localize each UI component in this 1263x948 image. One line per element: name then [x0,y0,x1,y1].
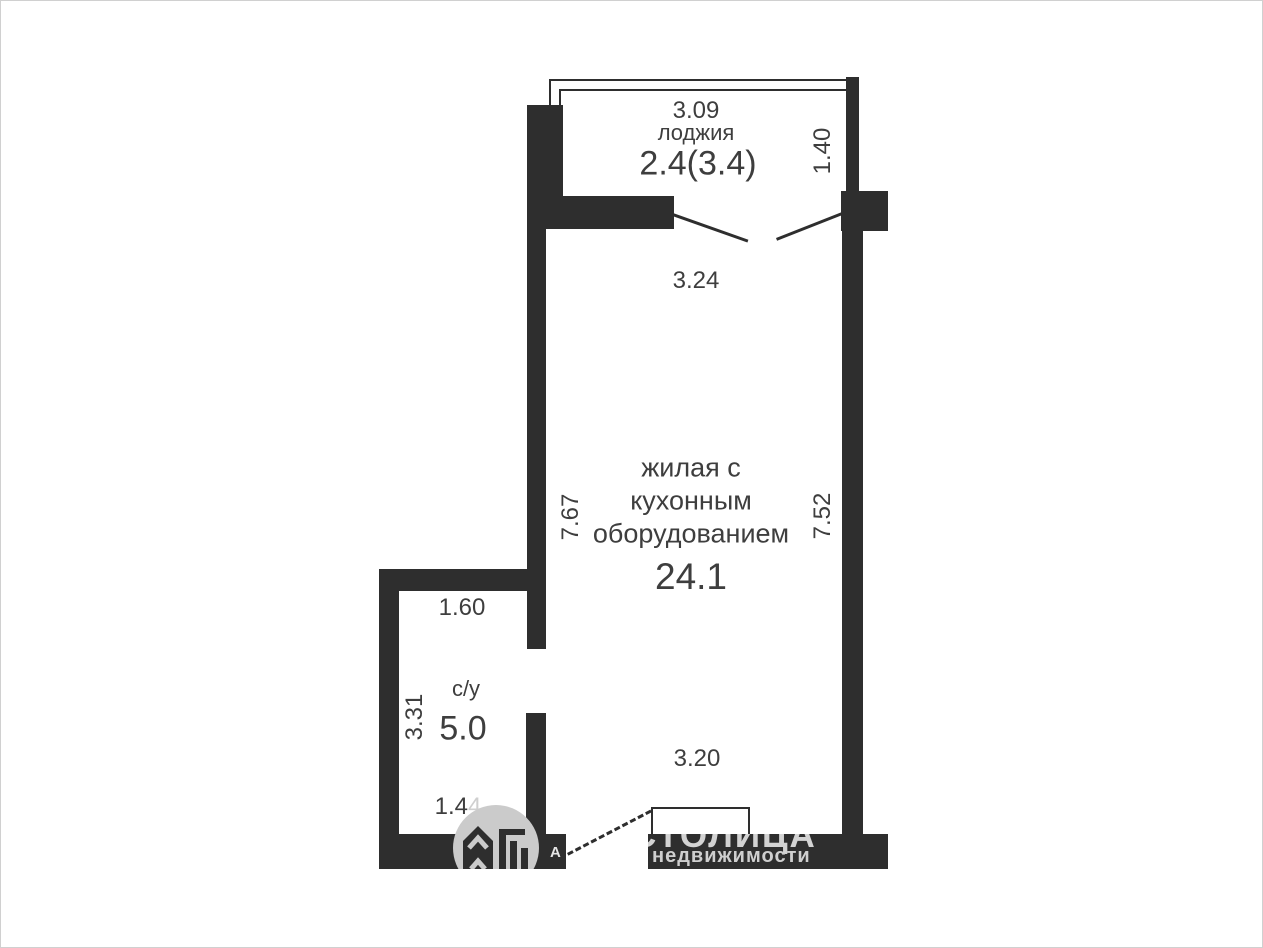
bathroom-dim-left: 3.31 [401,694,429,741]
entrance-door-swing-line [567,810,652,856]
loggia-dim-right: 1.40 [809,128,837,175]
living-dim-top: 3.24 [673,267,720,295]
living-label-line1: жилая с [593,452,789,485]
loggia-glazing-inner-line [559,89,847,91]
watermark-agency-text: недвижимости [652,845,811,868]
wall-bathroom-top [379,569,546,591]
wall-bathroom-left [379,569,399,869]
wall-loggia-left [527,105,563,196]
loggia-glazing-outer-return [549,79,551,107]
bathroom-dim-top: 1.60 [439,594,486,622]
living-label-line2: кухонным [593,485,789,518]
balcony-door-leaf-left [672,213,748,243]
loggia-glazing-outer-line [549,79,847,81]
floor-plan-page: СТОЛИЦА недвижимости 3.09 лоджия 2.4(3.4… [0,0,1263,948]
balcony-door-leaf-right [776,211,845,241]
living-label: жилая с кухонным оборудованием [593,452,789,551]
wall-balcony-left [527,196,674,229]
watermark-logo-circle [453,805,541,869]
living-label-line3: оборудованием [593,518,789,551]
wall-main-right [842,231,863,834]
living-dim-left: 7.67 [557,494,585,541]
bathroom-label: с/у [452,676,480,702]
loggia-area: 2.4(3.4) [639,145,756,184]
house-with-bars-icon [459,821,535,869]
wall-loggia-right [846,77,859,191]
living-area: 24.1 [655,556,727,598]
watermark-agency-initial: А [550,844,561,861]
wall-bottom-right: СТОЛИЦА недвижимости [648,834,888,869]
living-dim-bottom: 3.20 [674,745,721,773]
loggia-label: лоджия [658,120,735,146]
wall-corner-ne [841,191,888,231]
bathroom-area: 5.0 [439,710,486,749]
living-dim-right: 7.52 [809,493,837,540]
